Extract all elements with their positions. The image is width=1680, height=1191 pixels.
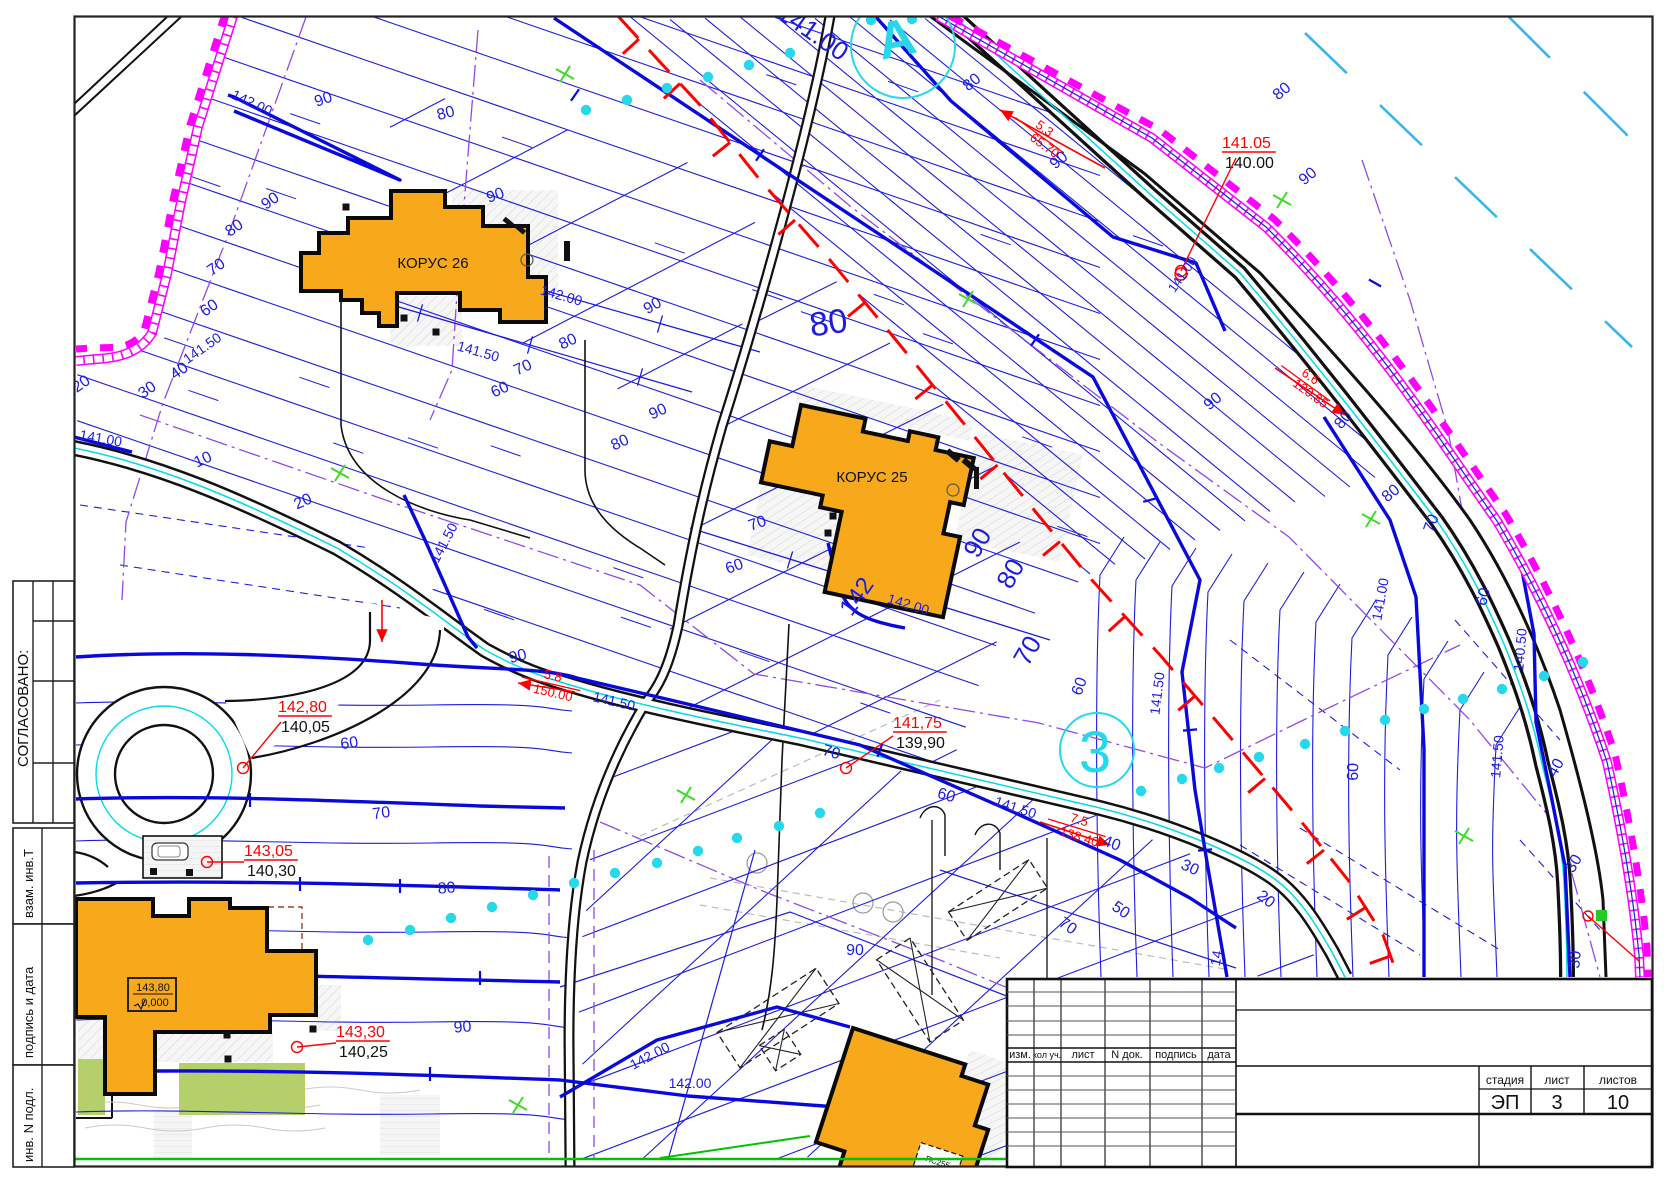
svg-text:143,05: 143,05 [244,843,293,860]
svg-text:30: 30 [1566,950,1584,969]
svg-text:кол уч.: кол уч. [1033,1050,1061,1060]
svg-text:инв. N подл.: инв. N подл. [21,1088,36,1162]
svg-text:лист: лист [1544,1073,1570,1087]
svg-text:подпись: подпись [1155,1049,1197,1061]
svg-text:141,75: 141,75 [893,715,942,732]
svg-text:3: 3 [1551,1092,1562,1114]
svg-text:143,30: 143,30 [336,1024,385,1041]
svg-text:ЭП: ЭП [1491,1092,1520,1114]
svg-text:взам. инв.Т: взам. инв.Т [21,849,36,918]
svg-text:0,000: 0,000 [141,997,169,1009]
svg-text:140.00: 140.00 [1225,155,1274,172]
svg-text:3: 3 [1079,720,1111,785]
svg-text:СОГЛАСОВАНО:: СОГЛАСОВАНО: [15,650,32,767]
svg-text:140,25: 140,25 [339,1044,388,1061]
svg-text:90: 90 [846,942,864,959]
svg-text:дата: дата [1207,1049,1231,1061]
svg-text:14: 14 [1207,949,1225,967]
svg-text:142.00: 142.00 [669,1075,712,1091]
svg-text:141.05: 141.05 [1222,135,1271,152]
svg-text:139,90: 139,90 [896,735,945,752]
svg-text:60: 60 [1345,763,1363,781]
svg-text:подпись и дата: подпись и дата [21,966,36,1058]
svg-text:143,80: 143,80 [136,982,170,994]
svg-text:140,05: 140,05 [281,719,330,736]
svg-text:изм.: изм. [1009,1049,1031,1061]
svg-text:142,80: 142,80 [278,699,327,716]
svg-text:70: 70 [371,804,391,823]
svg-text:КОРУС 26: КОРУС 26 [397,255,468,272]
svg-text:лист: лист [1071,1049,1094,1061]
svg-text:КОРУС 25: КОРУС 25 [836,469,907,486]
svg-text:60: 60 [339,734,359,753]
svg-text:листов: листов [1599,1073,1637,1087]
svg-text:стадия: стадия [1486,1073,1524,1087]
svg-text:10: 10 [1607,1092,1629,1114]
svg-text:80: 80 [437,879,456,897]
svg-text:80: 80 [807,302,850,345]
svg-text:140,30: 140,30 [247,863,296,880]
svg-text:90: 90 [453,1018,472,1036]
svg-text:N док.: N док. [1111,1049,1142,1061]
